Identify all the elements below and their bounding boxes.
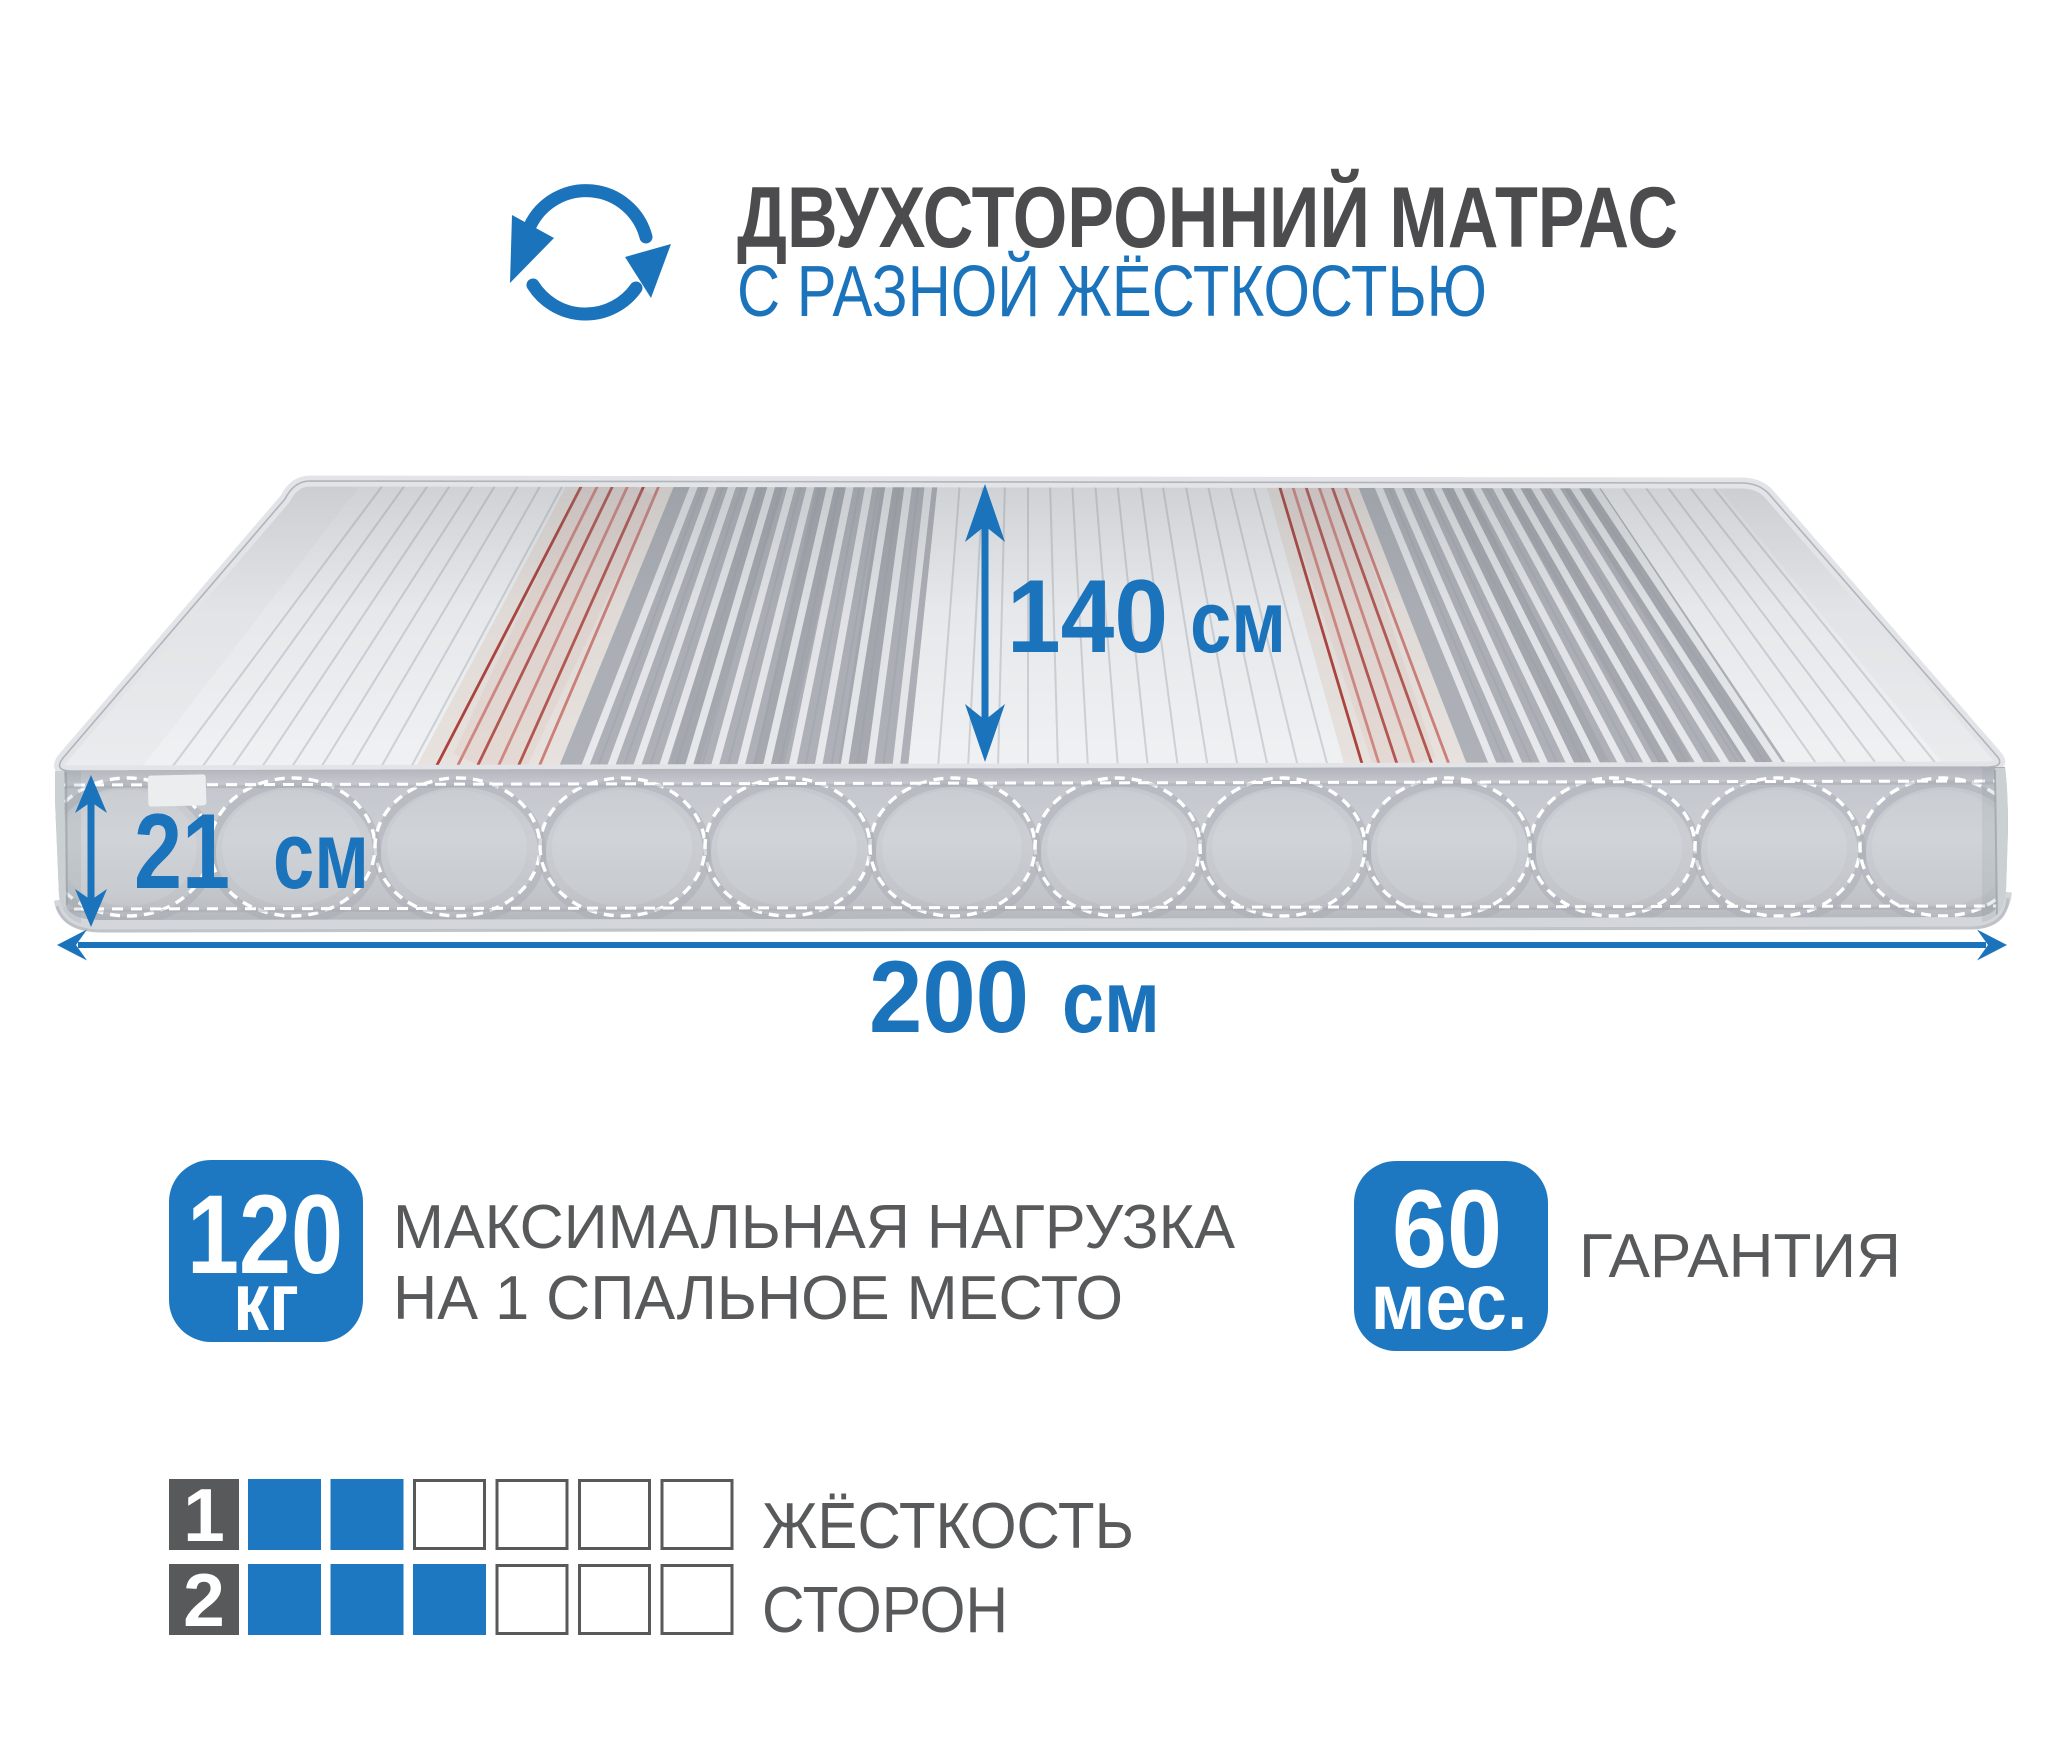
svg-text:МАКСИМАЛЬНАЯ НАГРУЗКА: МАКСИМАЛЬНАЯ НАГРУЗКА — [393, 1193, 1236, 1262]
svg-text:мес.: мес. — [1371, 1257, 1528, 1346]
svg-text:21: 21 — [134, 791, 230, 911]
svg-text:см: см — [1062, 952, 1160, 1051]
svg-text:1: 1 — [183, 1473, 225, 1557]
svg-text:ЖЁСТКОСТЬ: ЖЁСТКОСТЬ — [762, 1489, 1134, 1562]
svg-text:СТОРОН: СТОРОН — [762, 1573, 1008, 1646]
svg-text:НА 1 СПАЛЬНОЕ МЕСТО: НА 1 СПАЛЬНОЕ МЕСТО — [393, 1264, 1123, 1333]
svg-text:140: 140 — [1007, 559, 1168, 675]
svg-text:см: см — [273, 802, 369, 909]
svg-text:см: см — [1190, 572, 1286, 671]
svg-text:С РАЗНОЙ ЖЁСТКОСТЬЮ: С РАЗНОЙ ЖЁСТКОСТЬЮ — [737, 250, 1487, 332]
svg-text:2: 2 — [183, 1558, 225, 1642]
svg-text:кг: кг — [233, 1255, 299, 1348]
svg-text:ГАРАНТИЯ: ГАРАНТИЯ — [1579, 1222, 1901, 1291]
svg-text:200: 200 — [869, 940, 1029, 1054]
